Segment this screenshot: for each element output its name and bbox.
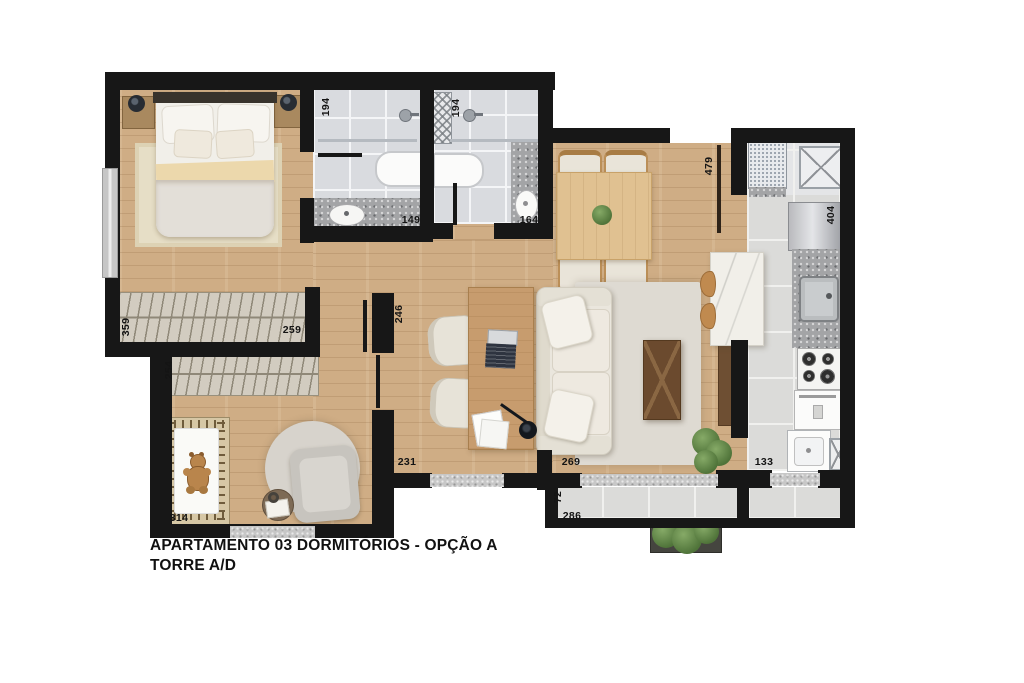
wall-top — [105, 72, 555, 90]
dim-kitchen-access: 133 — [755, 456, 773, 468]
dim-office-width: 246 — [393, 305, 405, 323]
teddy-bear-icon — [186, 454, 208, 494]
dim-balcony-depth: 72 — [552, 491, 564, 503]
wall-bath-divider — [420, 88, 434, 228]
dim-bath1-width: 194 — [320, 98, 332, 116]
floor-plan: 194 194 149 164 479 404 359 259 254 246 … — [0, 0, 1024, 683]
dim-living-door: 269 — [562, 456, 580, 468]
stove-cooktop — [797, 348, 843, 390]
living-glass-door — [580, 474, 718, 486]
burner-icon — [803, 370, 815, 382]
laundry-sink — [787, 430, 831, 472]
kitchen-glass-door — [770, 473, 820, 486]
accent-pillow — [215, 129, 255, 160]
dim-balcony-length: 286 — [563, 510, 581, 522]
table-lamp-icon — [280, 94, 297, 111]
wall-mid-lower — [372, 410, 394, 538]
bath2-glass-shelf — [450, 139, 538, 142]
wall-balcony-bottom — [545, 518, 855, 528]
wall-laundry-left — [731, 128, 747, 195]
bedroom-window — [102, 168, 118, 278]
dim-bath2-length: 164 — [520, 214, 538, 226]
door-leaf-bathroom2 — [453, 183, 457, 225]
wall-wardrobe-stub — [305, 287, 320, 347]
wall-bath1-bottom — [300, 226, 433, 242]
kitchen-sink — [799, 276, 839, 322]
coffee-table — [643, 340, 681, 420]
sofa — [536, 287, 612, 455]
laundry-tank-icon — [799, 146, 843, 189]
duvet — [156, 180, 274, 237]
island-stool — [700, 271, 716, 297]
dim-bedroom-length: 359 — [120, 318, 132, 336]
burner-icon — [822, 353, 834, 365]
wall-kitchen-bottom-a — [748, 470, 772, 488]
wall-balcony-divider — [737, 487, 749, 520]
table-lamp-icon — [128, 95, 145, 112]
wardrobe-master — [118, 292, 309, 343]
wall-office-bottom-a — [394, 473, 432, 488]
bath1-glass-shelf — [318, 139, 417, 142]
door-leaf-bedroom — [363, 300, 367, 352]
wall-bath2-right — [538, 78, 553, 238]
faucet-icon — [826, 293, 832, 299]
oven — [794, 390, 841, 430]
bed — [156, 92, 274, 237]
bathtub — [433, 153, 484, 188]
dim-bath1-length: 149 — [402, 214, 420, 226]
dim-kitchen-length: 404 — [825, 206, 837, 224]
floor-lamp-icon — [519, 421, 537, 439]
wall-bedroom-bottom — [105, 342, 320, 357]
nursery-armchair — [289, 444, 361, 523]
wall-nursery-left — [150, 357, 172, 538]
wall-mid-upper — [372, 293, 394, 353]
island-stool — [700, 303, 716, 329]
plan-title: APARTAMENTO 03 DORMITÓRIOS - OPÇÃO A TOR… — [150, 536, 498, 575]
wall-kitchen-bottom-b — [818, 470, 855, 488]
wall-bath1-left-a — [300, 78, 314, 152]
plan-title-line2: TORRE A/D — [150, 556, 498, 576]
desk-papers — [479, 419, 510, 450]
burner-icon — [802, 352, 816, 366]
wall-kitchen-living — [731, 340, 748, 438]
toilet-flush-icon — [523, 201, 528, 206]
plan-title-line1: APARTAMENTO 03 DORMITÓRIOS - OPÇÃO A — [150, 536, 498, 556]
dim-bath2-width: 194 — [450, 99, 462, 117]
wall-balcony-stub — [537, 450, 552, 490]
office-window — [430, 474, 504, 487]
crib — [163, 417, 230, 525]
dim-social-width: 479 — [703, 157, 715, 175]
laptop-icon — [485, 329, 517, 369]
balcony-floor-right — [748, 487, 840, 519]
wall-living-bottom-c — [716, 470, 750, 488]
dim-wardrobe2: 254 — [163, 361, 175, 379]
door-leaf-nursery — [376, 355, 380, 408]
washing-machine-icon — [748, 142, 787, 189]
wall-laundry-top — [731, 128, 855, 143]
ceiling-projection-line — [717, 145, 721, 233]
laundry-counter — [749, 187, 786, 197]
accent-pillow — [173, 129, 212, 159]
balcony-floor-left — [556, 487, 737, 519]
wall-dining-top — [551, 128, 670, 143]
dim-office-window: 231 — [398, 456, 416, 468]
headboard — [153, 92, 277, 103]
kitchen-island — [710, 252, 764, 346]
wall-right — [840, 128, 855, 528]
wardrobe-nursery — [158, 352, 319, 396]
bath2-door-threshold — [452, 222, 494, 240]
shower-arm — [410, 113, 419, 116]
dim-wardrobe1: 259 — [283, 324, 301, 336]
bathtub — [375, 151, 423, 187]
shower-arm — [474, 113, 483, 116]
armchair-cushion — [299, 455, 352, 513]
burner-icon — [820, 369, 835, 384]
side-table-tray-icon — [268, 492, 279, 503]
wall-bath2-bottom-a — [433, 223, 453, 239]
side-table-book — [265, 498, 290, 518]
table-plant-icon — [592, 205, 612, 225]
dim-nursery-width: 314 — [170, 512, 188, 524]
door-leaf-bathroom1 — [318, 153, 362, 157]
bath1-faucet-icon — [344, 211, 349, 216]
